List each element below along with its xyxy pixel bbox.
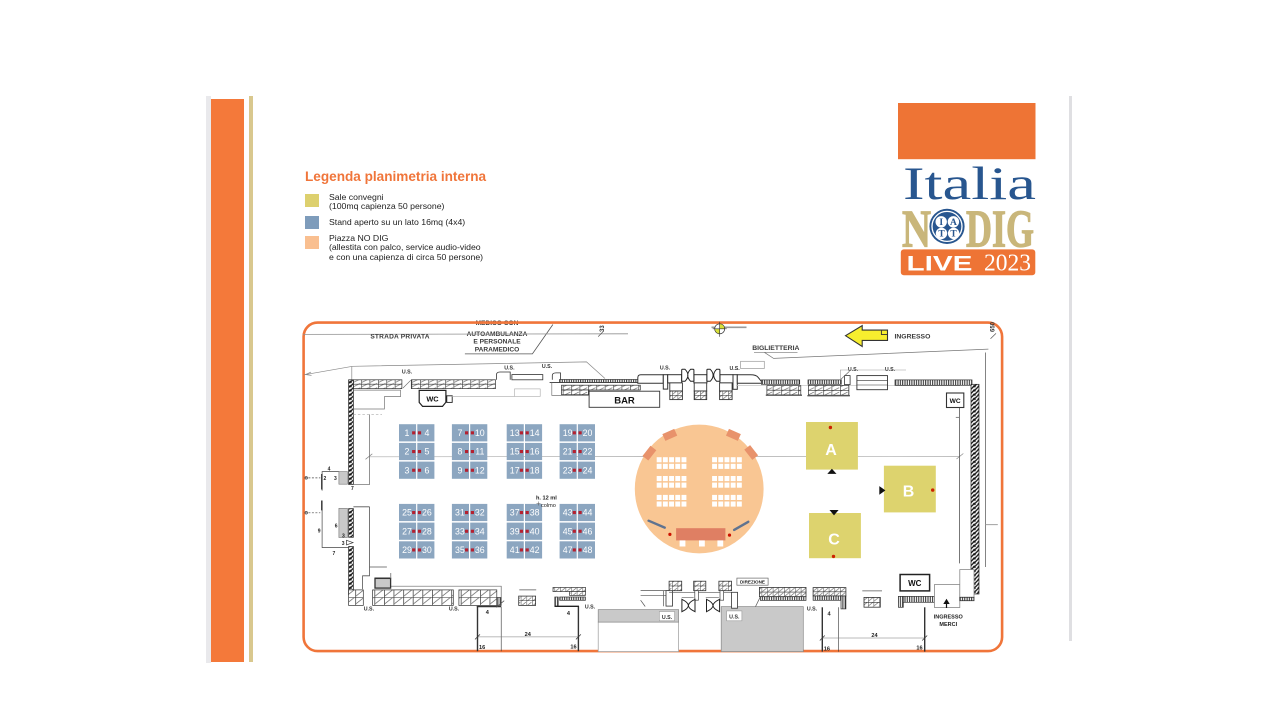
svg-text:20: 20 [583, 428, 593, 438]
svg-text:PARAMEDICO: PARAMEDICO [475, 346, 520, 353]
svg-text:U.S.: U.S. [585, 604, 596, 610]
svg-text:45: 45 [563, 526, 573, 536]
svg-text:U.S.: U.S. [729, 615, 740, 621]
svg-text:h. 12 ml: h. 12 ml [536, 496, 557, 502]
svg-text:U.S.: U.S. [504, 366, 515, 372]
svg-text:16: 16 [479, 645, 485, 651]
svg-text:1: 1 [405, 428, 410, 438]
svg-text:26: 26 [422, 508, 432, 518]
svg-text:T: T [950, 230, 957, 240]
svg-text:A: A [825, 442, 837, 459]
svg-text:48: 48 [583, 545, 593, 555]
svg-text:17: 17 [510, 465, 520, 475]
svg-text:14: 14 [530, 428, 540, 438]
svg-text:19: 19 [563, 428, 573, 438]
svg-text:U.S.: U.S. [662, 615, 673, 621]
svg-text:40: 40 [530, 526, 540, 536]
svg-text:B: B [903, 484, 915, 501]
svg-text:WC: WC [426, 394, 439, 403]
svg-text:7: 7 [333, 551, 336, 557]
svg-text:38: 38 [530, 508, 540, 518]
svg-text:7: 7 [457, 428, 462, 438]
svg-text:6: 6 [335, 523, 338, 529]
svg-text:9: 9 [318, 529, 321, 535]
svg-text:7: 7 [351, 486, 354, 492]
svg-text:22: 22 [583, 447, 593, 457]
svg-text:U.S.: U.S. [542, 364, 553, 370]
svg-text:37: 37 [510, 508, 520, 518]
svg-text:U.S.: U.S. [729, 366, 740, 372]
svg-text:34: 34 [475, 526, 485, 536]
svg-text:28: 28 [422, 526, 432, 536]
svg-text:LIVE: LIVE [907, 252, 973, 275]
svg-text:STRADA PRIVATA: STRADA PRIVATA [370, 334, 429, 341]
svg-text:30: 30 [422, 545, 432, 555]
svg-text:U.S.: U.S. [402, 370, 413, 376]
svg-text:2: 2 [324, 476, 327, 482]
svg-text:U.S.: U.S. [660, 366, 671, 372]
svg-text:BIGLIETTERIA: BIGLIETTERIA [752, 345, 799, 352]
svg-text:10: 10 [475, 428, 485, 438]
svg-text:16: 16 [530, 447, 540, 457]
svg-text:12: 12 [475, 465, 485, 475]
svg-text:650: 650 [990, 321, 996, 332]
svg-text:47: 47 [563, 545, 573, 555]
svg-text:29: 29 [402, 545, 412, 555]
svg-text:27: 27 [402, 526, 412, 536]
svg-text:33: 33 [600, 325, 606, 332]
svg-text:3: 3 [334, 476, 337, 482]
svg-text:32: 32 [475, 508, 485, 518]
svg-text:16: 16 [570, 644, 576, 650]
svg-text:DIREZIONE: DIREZIONE [740, 580, 765, 585]
svg-text:INGRESSO: INGRESSO [934, 614, 964, 620]
svg-text:4: 4 [486, 610, 490, 616]
svg-text:E PERSONALE: E PERSONALE [473, 339, 521, 346]
svg-text:U.S.: U.S. [807, 606, 818, 612]
svg-text:42: 42 [530, 545, 540, 555]
svg-text:2023: 2023 [984, 251, 1031, 277]
svg-text:31: 31 [455, 508, 465, 518]
svg-text:2: 2 [405, 447, 410, 457]
svg-text:AUTOAMBULANZA: AUTOAMBULANZA [467, 331, 528, 338]
svg-text:U.S.: U.S. [364, 606, 375, 612]
svg-text:U.S.: U.S. [449, 606, 460, 612]
svg-text:24: 24 [525, 632, 532, 638]
svg-text:24: 24 [583, 465, 593, 475]
svg-text:A: A [950, 218, 957, 228]
svg-text:24: 24 [871, 633, 878, 639]
svg-text:4: 4 [827, 612, 831, 618]
svg-text:21: 21 [563, 447, 573, 457]
svg-text:4: 4 [328, 466, 331, 472]
svg-text:T: T [938, 230, 945, 240]
svg-text:39: 39 [510, 526, 520, 536]
svg-text:WC: WC [950, 398, 961, 405]
svg-text:C: C [828, 532, 840, 549]
svg-text:8: 8 [457, 447, 462, 457]
svg-text:41: 41 [510, 545, 520, 555]
svg-text:BAR: BAR [614, 396, 635, 407]
svg-text:15: 15 [510, 447, 520, 457]
svg-text:3: 3 [405, 465, 410, 475]
svg-text:INGRESSO: INGRESSO [895, 334, 931, 341]
svg-text:35: 35 [455, 545, 465, 555]
svg-text:44: 44 [583, 508, 593, 518]
svg-text:colmo: colmo [541, 503, 556, 509]
svg-text:23: 23 [563, 465, 573, 475]
svg-text:WC: WC [908, 579, 922, 588]
svg-text:13: 13 [510, 428, 520, 438]
svg-text:5: 5 [424, 447, 429, 457]
svg-text:3: 3 [342, 534, 345, 540]
svg-text:9: 9 [457, 465, 462, 475]
svg-text:4: 4 [424, 428, 429, 438]
svg-text:16: 16 [916, 646, 922, 652]
svg-text:36: 36 [475, 545, 485, 555]
svg-text:11: 11 [475, 447, 484, 457]
svg-text:3: 3 [342, 541, 345, 547]
svg-text:6: 6 [424, 465, 429, 475]
svg-text:25: 25 [402, 508, 412, 518]
svg-text:46: 46 [583, 526, 593, 536]
svg-text:4: 4 [567, 611, 571, 617]
svg-text:33: 33 [455, 526, 465, 536]
svg-text:18: 18 [530, 465, 540, 475]
svg-text:16: 16 [824, 647, 830, 653]
svg-text:43: 43 [563, 508, 573, 518]
svg-text:MERCI: MERCI [939, 622, 957, 628]
svg-text:I: I [939, 218, 943, 228]
